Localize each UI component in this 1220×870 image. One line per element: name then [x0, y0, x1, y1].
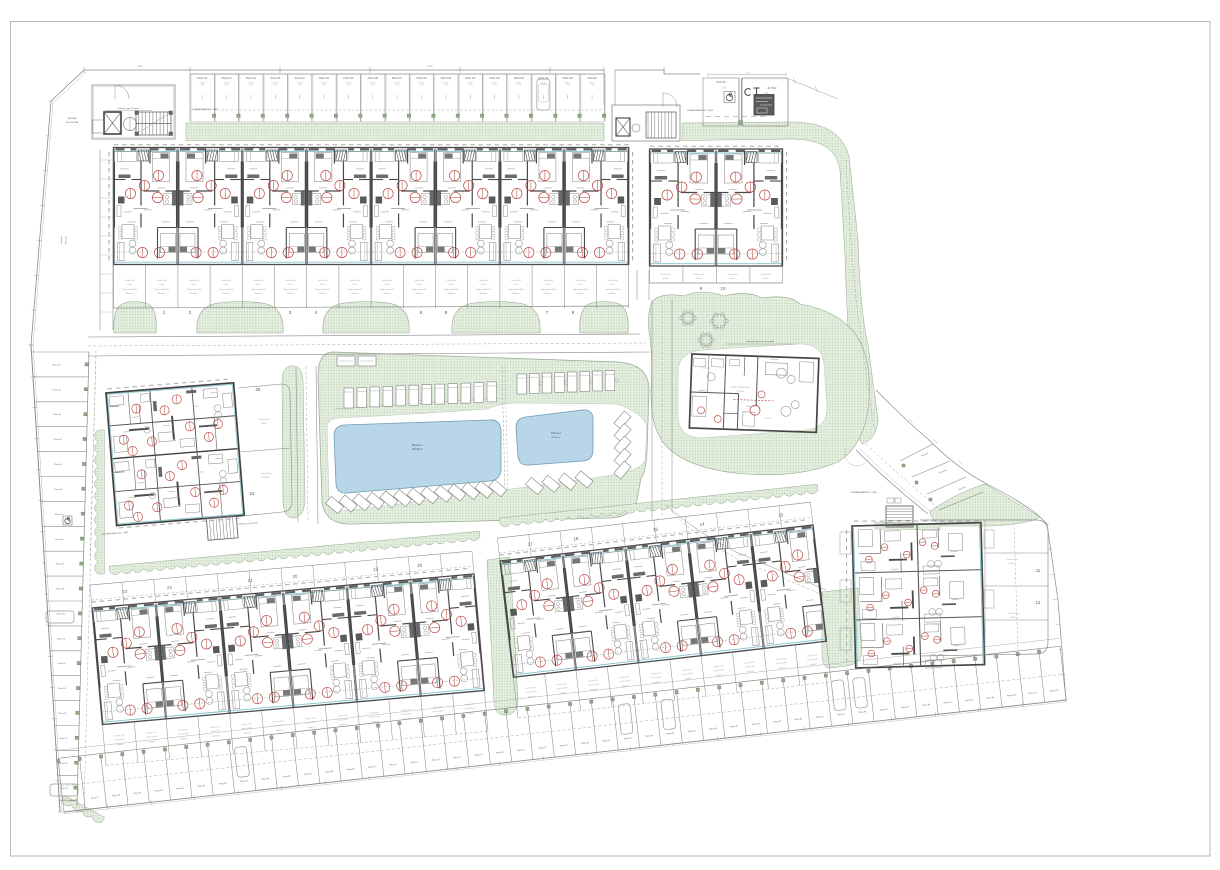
- svg-text:Plaza 100: Plaza 100: [563, 78, 574, 80]
- svg-text:Plaza 39: Plaza 39: [52, 364, 61, 366]
- svg-text:5.00 m: 5.00 m: [352, 284, 358, 286]
- svg-text:Jardín privado 100a: Jardín privado 100a: [186, 288, 201, 291]
- svg-text:5.00 m: 5.00 m: [513, 284, 519, 286]
- svg-text:5.00 m: 5.00 m: [224, 284, 230, 286]
- svg-text:Plaza 44: Plaza 44: [54, 489, 63, 491]
- svg-text:Parcela 100a: Parcela 100a: [350, 279, 360, 282]
- svg-text:Plaza 114: Plaza 114: [222, 78, 233, 80]
- svg-text:Plaza 111: Plaza 111: [295, 78, 306, 80]
- svg-text:Parcela 100a: Parcela 100a: [261, 473, 272, 475]
- svg-text:Plaza 55: Plaza 55: [59, 763, 68, 765]
- svg-text:Parcela 100a: Parcela 100a: [414, 279, 424, 282]
- svg-text:Plaza 109: Plaza 109: [343, 78, 354, 80]
- svg-text:26 APARTAMENTOS - 03P2: 26 APARTAMENTOS - 03P2: [687, 109, 714, 112]
- svg-text:Parcela 100a: Parcela 100a: [1007, 559, 1018, 561]
- svg-text:35.06 m²: 35.06 m²: [255, 292, 262, 295]
- svg-text:Plaza 103: Plaza 103: [489, 78, 500, 80]
- svg-text:Parcela 100a: Parcela 100a: [447, 279, 457, 282]
- svg-text:35.06 m²: 35.06 m²: [512, 292, 519, 295]
- svg-text:ZAGUAN: ZAGUAN: [67, 117, 77, 120]
- svg-text:35.06 m²: 35.06 m²: [545, 292, 552, 295]
- svg-text:Parcela 100a: Parcela 100a: [382, 279, 392, 282]
- svg-text:45.60 m²: 45.60 m²: [1008, 562, 1015, 565]
- svg-text:Plaza 102: Plaza 102: [514, 78, 525, 80]
- svg-text:Jardín privado 100a: Jardín privado 100a: [122, 288, 137, 291]
- svg-text:Parcela 100a: Parcela 100a: [1009, 613, 1020, 615]
- svg-text:55.80 m²: 55.80 m²: [737, 390, 745, 393]
- svg-text:Jardín privado 100a: Jardín privado 100a: [573, 288, 588, 291]
- svg-text:Plaza 106: Plaza 106: [416, 78, 427, 80]
- svg-text:5.00 m: 5.00 m: [159, 284, 165, 286]
- svg-text:Plaza 99: Plaza 99: [588, 78, 598, 80]
- svg-text:PTE 16%: PTE 16%: [66, 236, 68, 245]
- svg-text:Jardín privado 100a: Jardín privado 100a: [380, 288, 395, 291]
- svg-text:Jardín privado 100a: Jardín privado 100a: [251, 288, 266, 291]
- svg-text:Plaza 47: Plaza 47: [56, 564, 65, 566]
- svg-text:5.00 m: 5.00 m: [127, 284, 133, 286]
- svg-text:35.06 m²: 35.06 m²: [416, 292, 423, 295]
- svg-text:Parcela 100a: Parcela 100a: [575, 279, 585, 282]
- svg-text:Rampa: Rampa: [61, 236, 63, 244]
- svg-text:35.06 m²: 35.06 m²: [126, 292, 133, 295]
- svg-text:Plaza 42: Plaza 42: [53, 439, 62, 441]
- svg-text:Parcela 100a: Parcela 100a: [221, 279, 231, 282]
- svg-text:7: 7: [546, 310, 549, 315]
- svg-text:Jardín privado 100a: Jardín privado 100a: [219, 288, 234, 291]
- svg-text:25: 25: [256, 387, 261, 392]
- svg-text:5.00 m: 5.00 m: [578, 284, 584, 286]
- svg-text:Parcela 100a: Parcela 100a: [479, 279, 489, 282]
- svg-text:Plaza 40: Plaza 40: [53, 389, 62, 391]
- svg-text:39.64 m²: 39.64 m²: [262, 476, 269, 479]
- svg-text:Parcela 100a: Parcela 100a: [511, 279, 521, 282]
- svg-text:Plaza 110: Plaza 110: [319, 78, 330, 80]
- svg-text:26 APARTAMENTOS - 03P1: 26 APARTAMENTOS - 03P1: [192, 108, 219, 111]
- svg-text:Plaza 107: Plaza 107: [392, 78, 403, 80]
- svg-text:Parcela 100a: Parcela 100a: [125, 279, 135, 282]
- svg-text:Plaza 99: Plaza 99: [717, 82, 727, 84]
- svg-text:40 APARTAMENTOS - 03P5: 40 APARTAMENTOS - 03P5: [851, 491, 878, 494]
- svg-text:Parcela 100a: Parcela 100a: [259, 419, 270, 421]
- svg-text:35.06 m²: 35.06 m²: [223, 292, 230, 295]
- svg-text:10: 10: [721, 286, 726, 291]
- svg-text:5.00 m: 5.00 m: [481, 284, 487, 286]
- svg-text:Jardín privado 100a: Jardín privado 100a: [283, 288, 298, 291]
- svg-text:8: 8: [572, 310, 575, 315]
- svg-text:2: 2: [189, 310, 192, 315]
- svg-text:35.06 m²: 35.06 m²: [480, 292, 487, 295]
- svg-text:Jardín privado 100a: Jardín privado 100a: [412, 288, 427, 291]
- svg-text:30.84 m²: 30.84 m²: [260, 422, 267, 425]
- svg-text:5.00 m: 5.00 m: [610, 284, 616, 286]
- svg-text:Plaza 105: Plaza 105: [441, 78, 452, 80]
- svg-text:35.06 m²: 35.06 m²: [762, 277, 769, 280]
- svg-text:35.06 m²: 35.06 m²: [696, 277, 703, 280]
- svg-text:35.06 m²: 35.06 m²: [609, 292, 616, 295]
- svg-text:Jardín privado 100a: Jardín privado 100a: [476, 288, 491, 291]
- svg-text:11: 11: [1036, 568, 1041, 573]
- svg-text:Piscina 2: Piscina 2: [551, 432, 561, 435]
- svg-text:Parcela 100a: Parcela 100a: [761, 273, 771, 276]
- svg-text:Jardín privado 100a: Jardín privado 100a: [605, 288, 620, 291]
- svg-text:Plaza 49: Plaza 49: [57, 614, 66, 616]
- svg-text:Salón 100a: Salón 100a: [764, 418, 772, 420]
- svg-text:Jardín privado 100a: Jardín privado 100a: [347, 288, 362, 291]
- svg-text:5.00 m: 5.00 m: [385, 284, 391, 286]
- svg-text:41.86: 41.86: [137, 66, 143, 68]
- svg-text:Plaza 54: Plaza 54: [59, 738, 68, 740]
- svg-text:Plaza 41: Plaza 41: [53, 414, 62, 416]
- svg-text:Plaza 113: Plaza 113: [246, 78, 257, 80]
- svg-text:1: 1: [163, 310, 166, 315]
- svg-text:4: 4: [315, 310, 318, 315]
- svg-text:Plaza 45: Plaza 45: [55, 514, 64, 516]
- svg-text:24: 24: [250, 491, 255, 496]
- svg-text:Parcela 100a: Parcela 100a: [157, 279, 167, 282]
- svg-text:Plaza 112: Plaza 112: [270, 78, 281, 80]
- svg-text:42.56: 42.56: [427, 66, 433, 68]
- svg-text:35.06 m²: 35.06 m²: [384, 292, 391, 295]
- svg-text:Parcela 100a: Parcela 100a: [661, 273, 671, 276]
- svg-text:148.30 m²: 148.30 m²: [412, 448, 423, 451]
- svg-text:35.06 m²: 35.06 m²: [351, 292, 358, 295]
- svg-text:6: 6: [445, 310, 448, 315]
- svg-text:DE ESPERA: DE ESPERA: [66, 121, 79, 124]
- svg-text:35.06 m²: 35.06 m²: [577, 292, 584, 295]
- svg-text:Contador agua 26 apart: Contador agua 26 apart: [117, 107, 139, 110]
- svg-text:5.00 m: 5.00 m: [546, 284, 552, 286]
- svg-text:Plaza 50: Plaza 50: [57, 638, 66, 640]
- svg-text:35.06 m²: 35.06 m²: [448, 292, 455, 295]
- svg-text:5: 5: [420, 310, 423, 315]
- svg-text:Jardín privado 100a: Jardín privado 100a: [315, 288, 330, 291]
- svg-text:35.06 m²: 35.06 m²: [662, 277, 669, 280]
- svg-text:5.00 m: 5.00 m: [191, 284, 197, 286]
- svg-text:Jardín privado 100a: Jardín privado 100a: [154, 288, 169, 291]
- svg-text:99.99 m²: 99.99 m²: [552, 436, 561, 439]
- svg-text:Jardín privado 100a: Jardín privado 100a: [541, 288, 556, 291]
- svg-text:5.00 m: 5.00 m: [449, 284, 455, 286]
- svg-text:Plaza 48: Plaza 48: [56, 589, 65, 591]
- svg-text:Plaza 52: Plaza 52: [58, 688, 67, 690]
- svg-text:38.40 m²: 38.40 m²: [1010, 616, 1017, 619]
- svg-text:5.00 m: 5.00 m: [320, 284, 326, 286]
- svg-text:Plaza 104: Plaza 104: [465, 78, 476, 80]
- svg-text:35.06 m²: 35.06 m²: [319, 292, 326, 295]
- svg-text:Parcela 100a: Parcela 100a: [727, 273, 737, 276]
- svg-text:Parcela 100a: Parcela 100a: [543, 279, 553, 282]
- svg-text:Plaza 51: Plaza 51: [57, 663, 66, 665]
- svg-text:35.06 m²: 35.06 m²: [158, 292, 165, 295]
- svg-text:Jardín privado 100a: Jardín privado 100a: [508, 288, 523, 291]
- svg-text:35.06 m²: 35.06 m²: [287, 292, 294, 295]
- svg-text:35.06 m²: 35.06 m²: [729, 277, 736, 280]
- svg-text:Plaza 46: Plaza 46: [55, 539, 64, 541]
- svg-text:Parcela 100a: Parcela 100a: [318, 279, 328, 282]
- svg-text:5.00 m: 5.00 m: [288, 284, 294, 286]
- svg-text:Parcela 100a: Parcela 100a: [694, 273, 704, 276]
- svg-text:Plaza 53: Plaza 53: [58, 713, 67, 715]
- svg-text:12: 12: [1036, 600, 1041, 605]
- svg-text:3: 3: [289, 310, 292, 315]
- svg-text:35.06 m²: 35.06 m²: [190, 292, 197, 295]
- svg-text:Plaza 115: Plaza 115: [197, 78, 208, 80]
- svg-text:Contador agua y luz comunidad: Contador agua y luz comunidad: [746, 340, 774, 343]
- svg-text:5.00 m: 5.00 m: [256, 284, 262, 286]
- svg-text:20.75m2: 20.75m2: [768, 88, 778, 90]
- svg-text:Plaza 108: Plaza 108: [368, 78, 379, 80]
- svg-text:Parcela 100a: Parcela 100a: [253, 279, 263, 282]
- svg-text:Parcela 100a: Parcela 100a: [286, 279, 296, 282]
- svg-text:Plaza 43: Plaza 43: [54, 464, 63, 466]
- svg-text:5.00 m: 5.00 m: [417, 284, 423, 286]
- svg-text:Piscina 1: Piscina 1: [412, 443, 423, 447]
- svg-text:Jardín privado 100a: Jardín privado 100a: [444, 288, 459, 291]
- svg-text:Porche 100a: Porche 100a: [701, 367, 710, 369]
- svg-text:Parcela 100a: Parcela 100a: [189, 279, 199, 282]
- svg-text:Parcela 100a: Parcela 100a: [608, 279, 618, 282]
